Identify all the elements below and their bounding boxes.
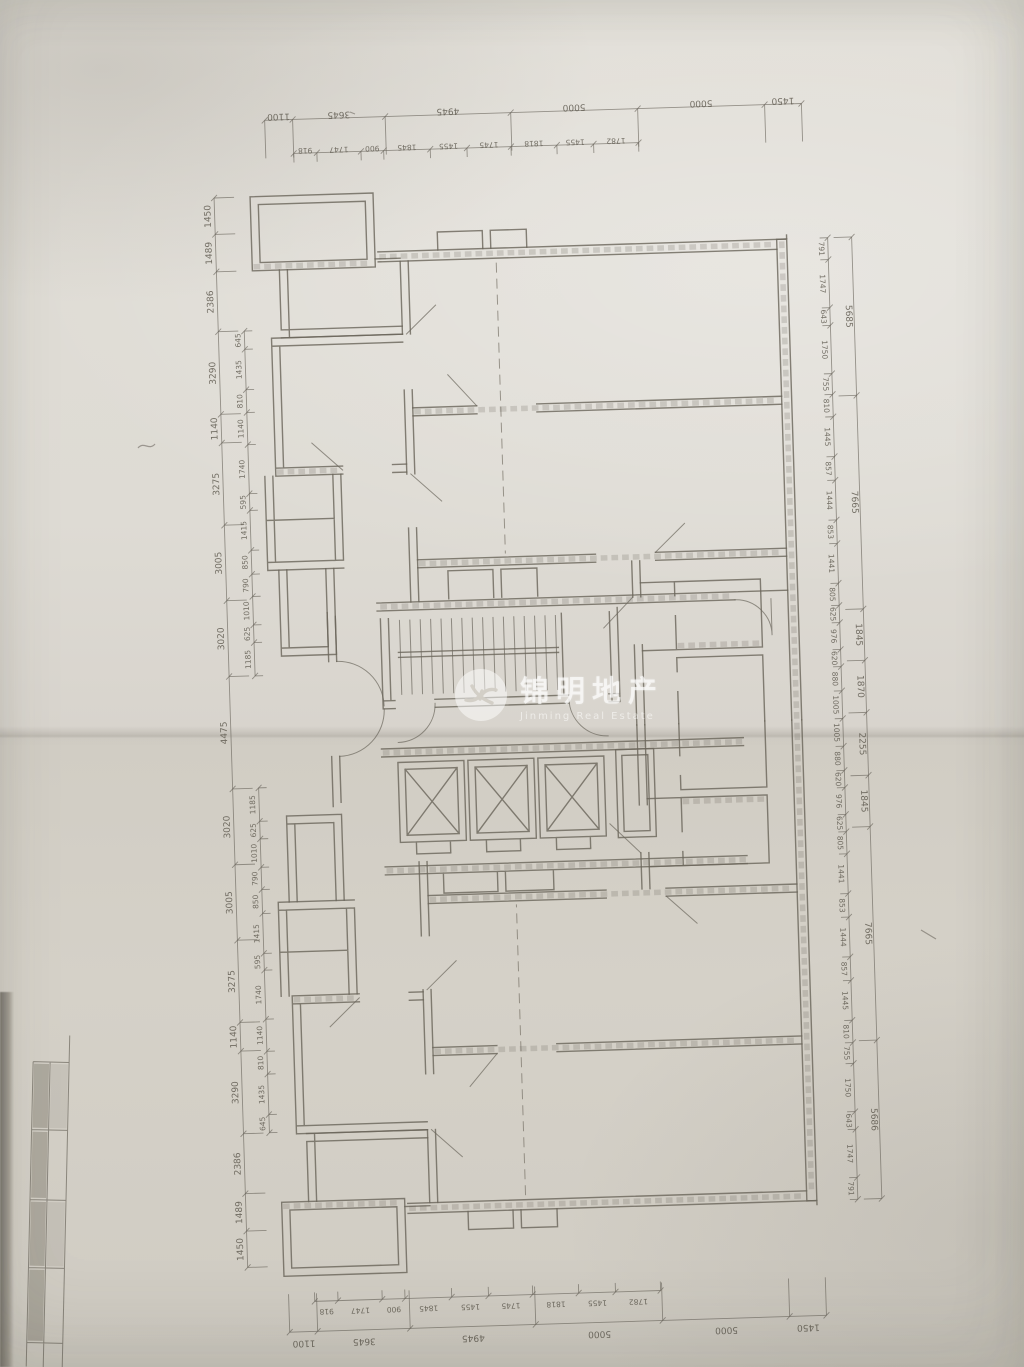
- dimension-label: 900: [365, 144, 380, 153]
- dimension-strings: 1100364549455000500014509181747900184514…: [200, 93, 889, 1350]
- dimension-label: 1455: [461, 1302, 481, 1312]
- service-room-2: [677, 655, 765, 724]
- dimension-label: 1415: [252, 924, 262, 944]
- dimension-label: 880: [830, 672, 839, 687]
- dim-left-groups: 1450148923863290114032753005302044753020…: [203, 194, 268, 1270]
- plan-sheet: 1100364549455000500014509181747900184514…: [200, 93, 889, 1350]
- dimension-label: 2255: [856, 732, 867, 755]
- dimension-label: 1450: [236, 1238, 247, 1261]
- dimension-label: 918: [319, 1307, 334, 1316]
- dimension-label: 643: [844, 1113, 853, 1128]
- dimension-label: 850: [251, 894, 260, 909]
- dimension-label: 853: [837, 898, 846, 913]
- dimension-label: 1445: [840, 991, 850, 1011]
- wing-room-b: [279, 258, 402, 338]
- dimension-label: 625: [243, 626, 252, 641]
- dimension-label: 2386: [206, 290, 217, 313]
- dimension-label: 1444: [825, 491, 835, 511]
- dimension-label: 805: [828, 587, 837, 602]
- dimension-label: 3020: [217, 627, 228, 650]
- dimension-label: 1100: [292, 1337, 315, 1348]
- dimension-label: 790: [250, 871, 259, 886]
- dimension-label: 1750: [820, 340, 830, 360]
- dimension-label: 1441: [836, 864, 846, 884]
- plan-walls-mirrored: [267, 720, 819, 1277]
- dimension-label: 620: [830, 651, 839, 666]
- elevator-bank-bottom: [385, 856, 748, 895]
- dimension-label: 918: [298, 146, 313, 155]
- core: [316, 244, 812, 1208]
- dimension-label: 5686: [868, 1108, 879, 1131]
- door-leaf: [448, 374, 477, 407]
- dimension-label: 1455: [588, 1298, 608, 1308]
- dimension-label: 643: [819, 309, 828, 324]
- stair-top-wall: [377, 590, 788, 611]
- title-block-cell: [30, 1202, 46, 1266]
- dimension-label: 1745: [501, 1301, 521, 1311]
- dimension-label: 1441: [827, 554, 837, 574]
- dim-top-inner: 9181747900184514551745181814551782: [290, 136, 641, 163]
- stair-chamber: [380, 608, 620, 709]
- dimension-label: 620: [833, 772, 842, 787]
- dimension-label: 810: [822, 398, 831, 413]
- dimension-label: 1450: [771, 95, 794, 106]
- dimension-label: 790: [241, 578, 250, 593]
- dimension-label: 7665: [862, 922, 873, 945]
- dim-bottom-inner: 9181747900184514551745181814551782: [311, 1281, 664, 1316]
- dimension-label: 1870: [854, 675, 865, 698]
- dimension-label: 3020: [222, 815, 233, 838]
- scan-marks: [138, 112, 936, 939]
- dimension-label: 625: [828, 607, 837, 622]
- dimension-label: 1185: [243, 650, 253, 670]
- wing-room-a: [250, 193, 375, 271]
- dimension-label: 1845: [419, 1303, 439, 1313]
- double-door-arcs: [337, 660, 386, 756]
- dimension-label: 1782: [628, 1297, 648, 1307]
- dimension-label: 1740: [237, 459, 247, 479]
- blueprint-drawing: 1100364549455000500014509181747900184514…: [0, 0, 1024, 1367]
- dimension-label: 4945: [462, 1332, 485, 1343]
- wing-room-c: [272, 334, 407, 476]
- dimension-label: 1747: [329, 145, 349, 155]
- title-block-cell: [33, 1064, 49, 1128]
- outer-wall-top: [378, 239, 787, 262]
- dimension-label: 4475: [220, 721, 231, 744]
- dimension-label: 1010: [249, 843, 259, 863]
- dim-left-chain-u: 6451435810114017405951415850790101062511…: [233, 328, 263, 679]
- dimension-label: 1740: [254, 985, 264, 1005]
- dimension-label: 1455: [565, 137, 585, 147]
- dimension-label: 625: [835, 816, 844, 831]
- title-block: [26, 1035, 70, 1367]
- door-leaf: [406, 305, 442, 502]
- dimension-label: 853: [826, 525, 835, 540]
- dimension-label: 645: [233, 333, 242, 348]
- dimension-label: 3275: [227, 970, 238, 993]
- dimension-label: 5000: [715, 1324, 738, 1335]
- dimension-label: 1818: [546, 1299, 566, 1309]
- dimension-label: 595: [238, 495, 247, 510]
- dimension-label: 5000: [689, 97, 712, 108]
- corridor-left-wall: [400, 261, 419, 602]
- title-block-cell: [31, 1132, 47, 1198]
- door-leaf: [655, 523, 686, 552]
- dimension-label: 595: [253, 954, 262, 969]
- elevator-bank-top: [381, 738, 743, 757]
- dimension-label: 1444: [838, 927, 848, 947]
- dimension-label: 5685: [843, 305, 854, 328]
- corridor-right-wall: [632, 561, 645, 725]
- dimension-label: 1005: [832, 723, 842, 743]
- dimension-label: 1450: [203, 205, 214, 228]
- dimension-label: 810: [841, 1024, 850, 1039]
- dimension-label: 7665: [849, 491, 860, 514]
- dimension-label: 976: [829, 629, 838, 644]
- dimension-label: 4945: [436, 105, 459, 116]
- dimension-label: 5000: [562, 101, 585, 112]
- dim-left-chain-l: 1185625101079085014155951740114081014356…: [248, 785, 278, 1136]
- elevator-shaft-2: [468, 758, 537, 852]
- dimension-label: 2386: [233, 1152, 244, 1175]
- dim-right-groups: 56857665184518702255184576655686: [834, 234, 885, 1202]
- dimension-label: 1415: [239, 521, 249, 541]
- dimension-label: 5000: [588, 1328, 611, 1339]
- dimension-label: 1185: [248, 795, 258, 815]
- dimension-label: 791: [846, 1181, 855, 1196]
- dimension-label: 3290: [231, 1081, 242, 1104]
- dimension-label: 3275: [212, 473, 223, 496]
- dimension-label: 1140: [236, 419, 246, 439]
- dimension-label: 1489: [235, 1201, 246, 1224]
- dimension-label: 3005: [225, 891, 236, 914]
- dimension-label: 1818: [524, 139, 544, 149]
- dimension-label: 1782: [606, 136, 626, 146]
- dimension-label: 857: [824, 461, 833, 476]
- dimension-label: 1745: [479, 140, 499, 150]
- title-block-cell: [47, 1202, 65, 1266]
- dimension-label: 1750: [843, 1078, 853, 1098]
- dimension-label: 1747: [845, 1144, 855, 1164]
- dimension-label: 1747: [818, 274, 828, 294]
- dimension-label: 755: [821, 377, 830, 392]
- dimension-label: 1845: [397, 143, 417, 153]
- dimension-label: 1445: [823, 427, 833, 447]
- lobby-left-wall: [327, 612, 341, 806]
- dimension-label: 1140: [255, 1026, 265, 1046]
- entry-stubs: [437, 229, 527, 250]
- dimension-label: 1140: [210, 417, 221, 440]
- dim-right-chain: 7911747643175075581014458571444853144180…: [817, 235, 861, 1203]
- dimension-label: 1845: [858, 789, 869, 812]
- dimension-label: 3645: [353, 1335, 376, 1346]
- dimension-label: 857: [839, 962, 848, 977]
- dimension-label: 1005: [831, 695, 841, 715]
- dimension-label: 755: [842, 1046, 851, 1061]
- dimension-label: 880: [833, 751, 842, 766]
- dimension-label: 1100: [267, 111, 290, 122]
- dimension-label: 3005: [214, 552, 225, 575]
- dimension-label: 791: [817, 242, 826, 257]
- dimension-label: 3645: [327, 109, 350, 120]
- shaft-4: [616, 748, 657, 837]
- dimension-label: 645: [258, 1116, 267, 1131]
- wing-room-d: [265, 474, 344, 570]
- dimension-label: 810: [256, 1055, 265, 1070]
- dimension-label: 3290: [208, 361, 219, 384]
- dimension-label: 1845: [853, 623, 864, 646]
- dimension-label: 850: [240, 555, 249, 570]
- elevator-shaft-3: [538, 756, 607, 850]
- floorplan-photo: 1100364549455000500014509181747900184514…: [0, 0, 1024, 1367]
- dimension-label: 1140: [229, 1025, 240, 1048]
- dimension-label: 1489: [204, 241, 215, 264]
- wall-hatching: [370, 244, 812, 1206]
- service-room-1: [640, 579, 762, 651]
- dimension-label: 1435: [257, 1085, 267, 1105]
- dimension-label: 1435: [234, 360, 244, 380]
- dimension-label: 810: [235, 394, 244, 409]
- dimension-label: 1450: [797, 1322, 820, 1333]
- dimension-label: 976: [834, 794, 843, 809]
- title-block-cell: [28, 1270, 45, 1341]
- door-arc: [735, 599, 772, 636]
- stair-handrail: [398, 647, 558, 657]
- dimension-label: 1455: [439, 141, 459, 151]
- dimension-label: 805: [835, 836, 844, 851]
- dimension-label: 1010: [242, 601, 252, 621]
- title-block-cell: [50, 1064, 68, 1128]
- dimension-label: 625: [249, 823, 258, 838]
- elevator-shaft-1: [398, 760, 467, 854]
- dimension-label: 900: [386, 1305, 401, 1314]
- dimension-label: 1747: [351, 1306, 371, 1316]
- stair-stubs: [448, 568, 538, 599]
